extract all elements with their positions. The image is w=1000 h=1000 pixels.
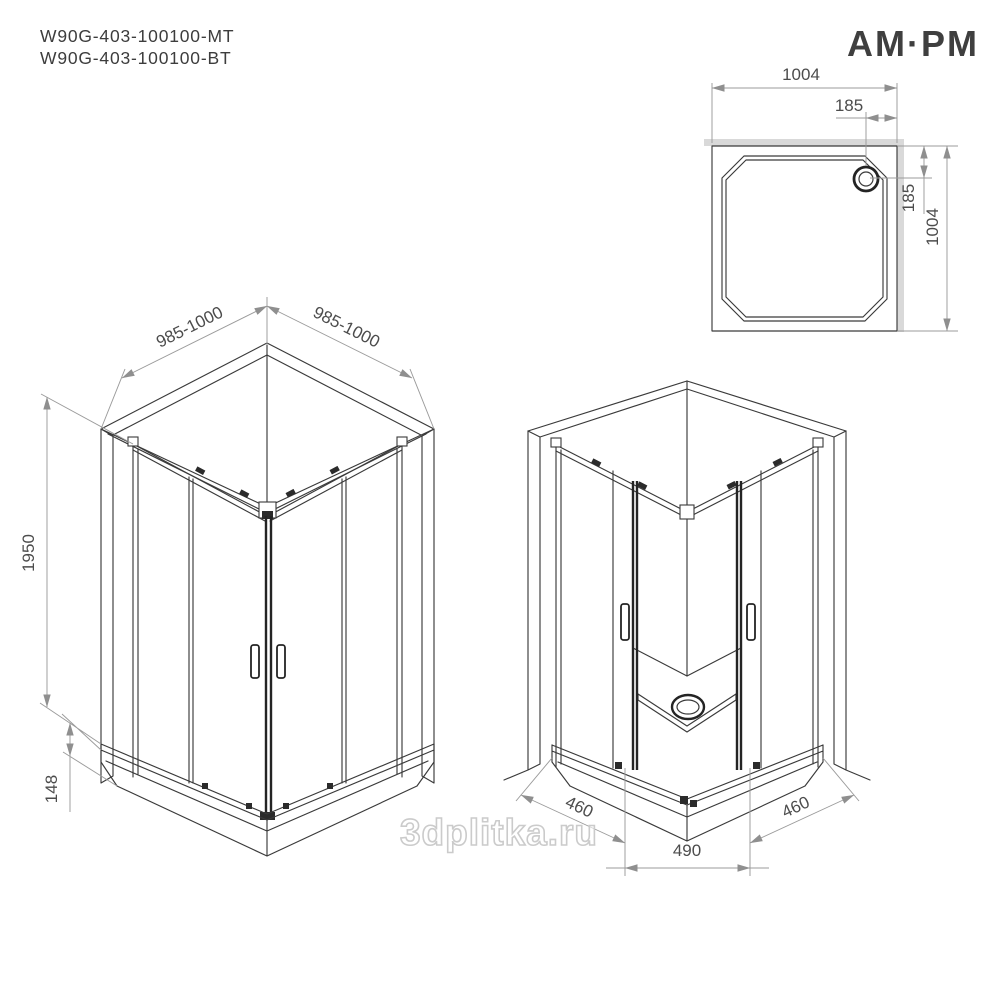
door-handle (621, 604, 629, 640)
dim-label-plan-height: 1004 (923, 208, 942, 246)
post-cap-right (397, 437, 407, 446)
door-glass-edges (189, 477, 346, 783)
plan-wall-right (897, 139, 904, 332)
dim-label-door-right: 460 (779, 792, 813, 821)
product-code-line1: W90G-403-100100-MT (40, 26, 234, 46)
dim-label-height: 1950 (19, 534, 38, 572)
wall-left (101, 429, 113, 783)
dim-label-plan-width: 1004 (782, 65, 820, 84)
door-handle (277, 645, 285, 678)
brand-logo: AM·PM (847, 23, 979, 64)
dim-label-plan-drain-side: 185 (899, 184, 918, 212)
dim-label-tray-height: 148 (42, 775, 61, 803)
post-cap-right (813, 438, 823, 447)
interior-iso-view: 460 460 490 (504, 381, 870, 876)
tray-base (101, 744, 434, 856)
wall-right (422, 429, 434, 783)
dim-label-plan-drain-top: 185 (835, 96, 863, 115)
post-cap-left (551, 438, 561, 447)
watermark: 3dplitka.ru (400, 812, 598, 853)
dim-label-width-right: 985-1000 (310, 303, 383, 352)
roller (727, 481, 737, 490)
dim-label-opening: 490 (673, 841, 701, 860)
plan-view: 1004 185 185 1004 (704, 65, 958, 332)
plan-wall-top (704, 139, 904, 146)
corner-guide (690, 800, 697, 807)
door-guide (246, 803, 252, 809)
corner-post (266, 516, 271, 819)
door-handle (747, 604, 755, 640)
post-cap-left (128, 437, 138, 446)
product-code-line2: W90G-403-100100-BT (40, 48, 231, 68)
exterior-iso-view: 985-1000 985-1000 1950 148 (19, 297, 434, 856)
plan-extension-lines (712, 83, 958, 331)
technical-drawing-page: W90G-403-100100-MT W90G-403-100100-BT AM… (0, 0, 1000, 1000)
door-guide (753, 762, 760, 769)
door-guide (327, 783, 333, 789)
door-guide (283, 803, 289, 809)
door-guide (202, 783, 208, 789)
drawing-canvas: W90G-403-100100-MT W90G-403-100100-BT AM… (0, 0, 1000, 1000)
corner-bracket (680, 505, 694, 519)
wall-right (834, 431, 870, 780)
door-guide (615, 762, 622, 769)
door-handle (251, 645, 259, 678)
wall-left (504, 431, 540, 780)
drain-circle (854, 167, 878, 191)
corner-guide (680, 796, 688, 804)
